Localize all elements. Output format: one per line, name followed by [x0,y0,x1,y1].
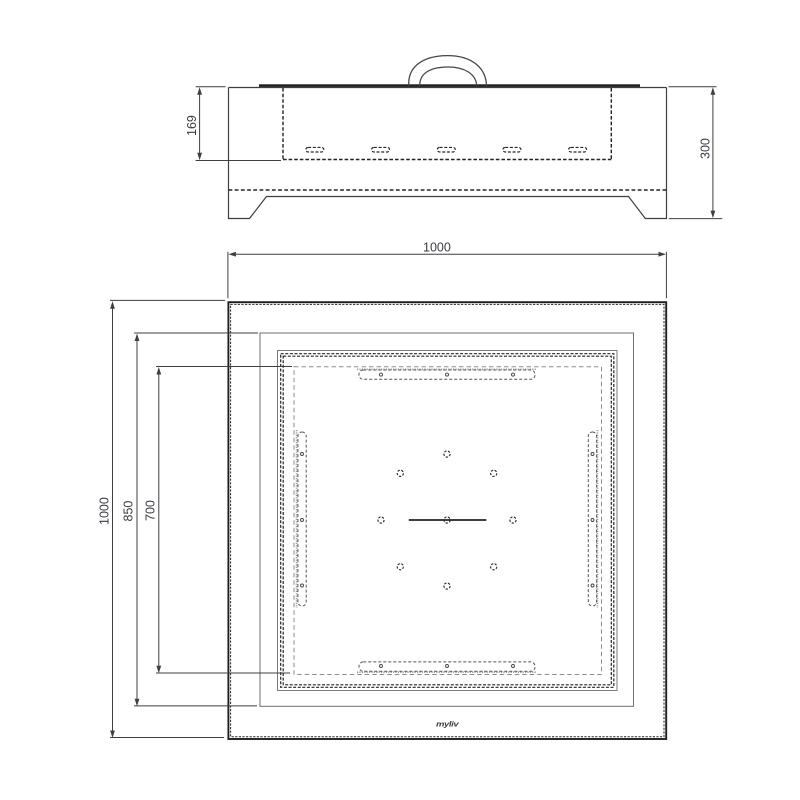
svg-text:300: 300 [699,138,713,159]
svg-text:myliv: myliv [436,720,460,729]
svg-text:1000: 1000 [98,497,112,525]
svg-text:169: 169 [185,115,199,136]
svg-text:1000: 1000 [423,241,451,255]
svg-text:700: 700 [144,500,158,521]
svg-text:850: 850 [122,501,136,522]
